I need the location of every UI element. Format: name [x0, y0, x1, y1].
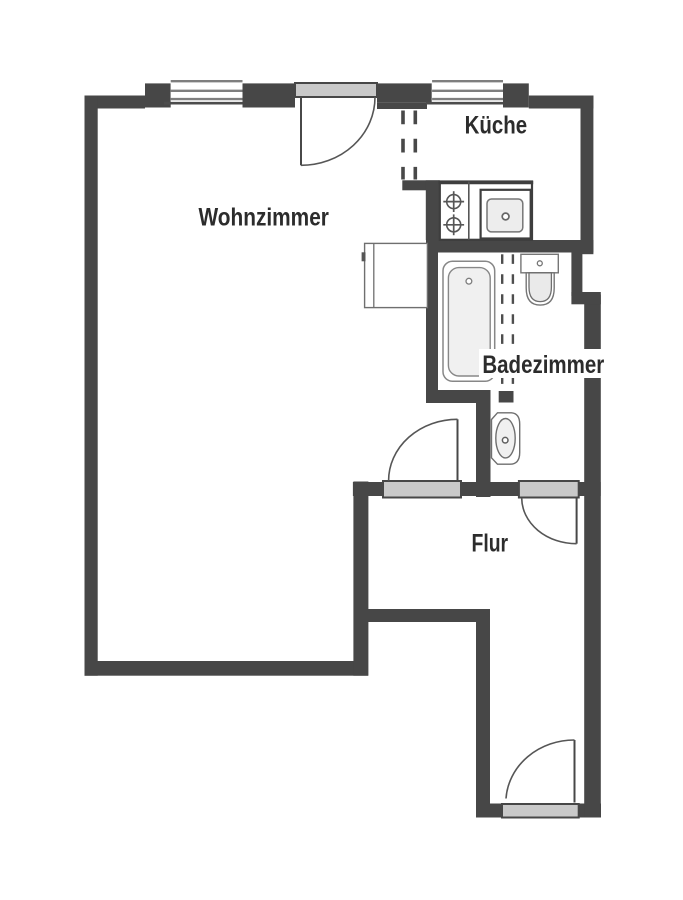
svg-text:Wohnzimmer: Wohnzimmer — [199, 204, 330, 232]
svg-text:Flur: Flur — [472, 530, 509, 558]
svg-text:Badezimmer: Badezimmer — [482, 351, 604, 379]
svg-text:Küche: Küche — [465, 112, 528, 140]
